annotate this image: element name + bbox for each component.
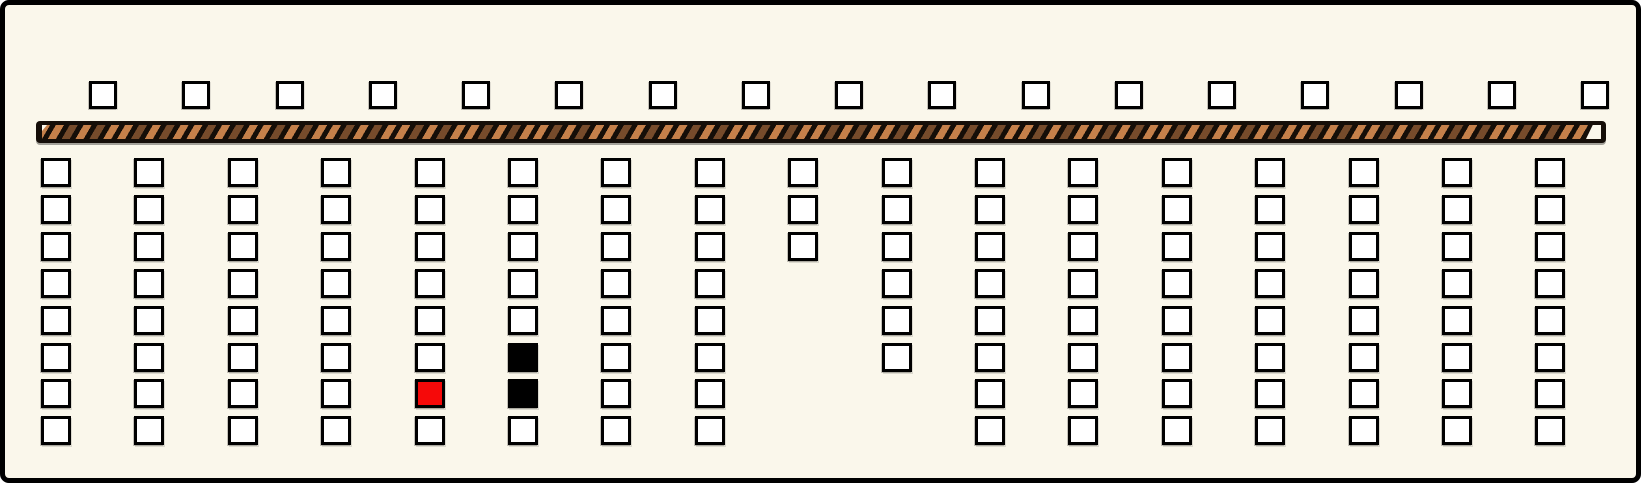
grid-cell-c2-r7 bbox=[134, 379, 164, 408]
grid-cell-c6-r7-black bbox=[508, 379, 538, 408]
grid-cell-c3-r6 bbox=[228, 343, 258, 372]
grid-cell-c15-r5 bbox=[1349, 306, 1379, 335]
grid-cell-c16-r1 bbox=[1442, 158, 1472, 187]
grid-cell-c7-r1 bbox=[601, 158, 631, 187]
top-slot-1 bbox=[89, 81, 117, 109]
top-slot-13 bbox=[1208, 81, 1236, 109]
grid-cell-c6-r6-black bbox=[508, 343, 538, 372]
grid-cell-c15-r3 bbox=[1349, 232, 1379, 261]
grid-cell-c8-r1 bbox=[695, 158, 725, 187]
grid-cell-c11-r1 bbox=[975, 158, 1005, 187]
grid-cell-c17-r4 bbox=[1535, 269, 1565, 298]
grid-cell-c4-r1 bbox=[321, 158, 351, 187]
grid-cell-c6-r8 bbox=[508, 416, 538, 445]
grid-cell-c17-r1 bbox=[1535, 158, 1565, 187]
grid-cell-c10-r2 bbox=[882, 195, 912, 224]
grid-cell-c4-r4 bbox=[321, 269, 351, 298]
grid-cell-c3-r7 bbox=[228, 379, 258, 408]
grid-cell-c12-r5 bbox=[1068, 306, 1098, 335]
hatched-bar bbox=[36, 121, 1606, 143]
grid-cell-c17-r8 bbox=[1535, 416, 1565, 445]
grid-cell-c7-r2 bbox=[601, 195, 631, 224]
grid-cell-c12-r6 bbox=[1068, 343, 1098, 372]
grid-cell-c10-r4 bbox=[882, 269, 912, 298]
grid-cell-c6-r2 bbox=[508, 195, 538, 224]
grid-cell-c5-r8 bbox=[415, 416, 445, 445]
grid-cell-c8-r2 bbox=[695, 195, 725, 224]
grid-cell-c9-r1 bbox=[788, 158, 818, 187]
top-slot-15 bbox=[1395, 81, 1423, 109]
grid-cell-c11-r2 bbox=[975, 195, 1005, 224]
grid-cell-c8-r4 bbox=[695, 269, 725, 298]
grid-cell-c11-r7 bbox=[975, 379, 1005, 408]
grid-cell-c11-r3 bbox=[975, 232, 1005, 261]
grid-cell-c17-r6 bbox=[1535, 343, 1565, 372]
grid-cell-c13-r2 bbox=[1162, 195, 1192, 224]
grid-cell-c9-r3 bbox=[788, 232, 818, 261]
grid-cell-c13-r8 bbox=[1162, 416, 1192, 445]
grid-cell-c14-r5 bbox=[1255, 306, 1285, 335]
grid-cell-c12-r4 bbox=[1068, 269, 1098, 298]
grid-cell-c14-r7 bbox=[1255, 379, 1285, 408]
grid-cell-c3-r2 bbox=[228, 195, 258, 224]
grid-cell-c3-r3 bbox=[228, 232, 258, 261]
grid-cell-c2-r3 bbox=[134, 232, 164, 261]
grid-cell-c3-r5 bbox=[228, 306, 258, 335]
grid-cell-c8-r6 bbox=[695, 343, 725, 372]
grid-cell-c17-r7 bbox=[1535, 379, 1565, 408]
grid-cell-c1-r7 bbox=[41, 379, 71, 408]
grid-cell-c12-r1 bbox=[1068, 158, 1098, 187]
grid-cell-c6-r4 bbox=[508, 269, 538, 298]
grid-cell-c16-r7 bbox=[1442, 379, 1472, 408]
grid-cell-c10-r5 bbox=[882, 306, 912, 335]
grid-cell-c5-r4 bbox=[415, 269, 445, 298]
grid-cell-c8-r8 bbox=[695, 416, 725, 445]
grid-cell-c8-r5 bbox=[695, 306, 725, 335]
grid-cell-c13-r7 bbox=[1162, 379, 1192, 408]
grid-cell-c2-r4 bbox=[134, 269, 164, 298]
grid-cell-c1-r4 bbox=[41, 269, 71, 298]
grid-cell-c17-r3 bbox=[1535, 232, 1565, 261]
grid-cell-c2-r5 bbox=[134, 306, 164, 335]
grid-cell-c17-r5 bbox=[1535, 306, 1565, 335]
grid-cell-c11-r6 bbox=[975, 343, 1005, 372]
grid-cell-c1-r1 bbox=[41, 158, 71, 187]
grid-cell-c4-r8 bbox=[321, 416, 351, 445]
grid-cell-c8-r3 bbox=[695, 232, 725, 261]
grid-cell-c5-r6 bbox=[415, 343, 445, 372]
top-slot-5 bbox=[462, 81, 490, 109]
grid-cell-c12-r7 bbox=[1068, 379, 1098, 408]
grid-cell-c1-r3 bbox=[41, 232, 71, 261]
grid-cell-c16-r2 bbox=[1442, 195, 1472, 224]
top-slot-12 bbox=[1115, 81, 1143, 109]
grid-cell-c3-r8 bbox=[228, 416, 258, 445]
grid-cell-c14-r2 bbox=[1255, 195, 1285, 224]
grid-cell-c7-r6 bbox=[601, 343, 631, 372]
hatched-bar-stripes bbox=[42, 125, 1601, 139]
grid-cell-c9-r2 bbox=[788, 195, 818, 224]
grid-cell-c2-r6 bbox=[134, 343, 164, 372]
grid-cell-c16-r8 bbox=[1442, 416, 1472, 445]
grid-cell-c10-r6 bbox=[882, 343, 912, 372]
grid-cell-c13-r6 bbox=[1162, 343, 1192, 372]
top-slot-2 bbox=[182, 81, 210, 109]
top-slot-6 bbox=[555, 81, 583, 109]
grid-cell-c1-r2 bbox=[41, 195, 71, 224]
grid-cell-c2-r8 bbox=[134, 416, 164, 445]
grid-cell-c13-r3 bbox=[1162, 232, 1192, 261]
grid-cell-c15-r2 bbox=[1349, 195, 1379, 224]
grid-cell-c10-r1 bbox=[882, 158, 912, 187]
top-slot-7 bbox=[649, 81, 677, 109]
grid-cell-c6-r3 bbox=[508, 232, 538, 261]
grid-cell-c16-r4 bbox=[1442, 269, 1472, 298]
top-slot-3 bbox=[276, 81, 304, 109]
grid-cell-c5-r1 bbox=[415, 158, 445, 187]
grid-cell-c12-r2 bbox=[1068, 195, 1098, 224]
grid-cell-c8-r7 bbox=[695, 379, 725, 408]
grid-cell-c7-r4 bbox=[601, 269, 631, 298]
grid-cell-c5-r5 bbox=[415, 306, 445, 335]
top-slot-14 bbox=[1301, 81, 1329, 109]
grid-cell-c13-r1 bbox=[1162, 158, 1192, 187]
grid-cell-c15-r8 bbox=[1349, 416, 1379, 445]
grid-cell-c14-r4 bbox=[1255, 269, 1285, 298]
board bbox=[0, 0, 1641, 483]
grid-cell-c2-r1 bbox=[134, 158, 164, 187]
grid-cell-c6-r5 bbox=[508, 306, 538, 335]
grid-cell-c1-r5 bbox=[41, 306, 71, 335]
top-slot-8 bbox=[742, 81, 770, 109]
grid-cell-c4-r6 bbox=[321, 343, 351, 372]
grid-cell-c4-r7 bbox=[321, 379, 351, 408]
grid-cell-c7-r7 bbox=[601, 379, 631, 408]
grid-cell-c15-r4 bbox=[1349, 269, 1379, 298]
grid-cell-c13-r4 bbox=[1162, 269, 1192, 298]
grid-cell-c13-r5 bbox=[1162, 306, 1192, 335]
top-slot-9 bbox=[835, 81, 863, 109]
top-slot-10 bbox=[928, 81, 956, 109]
top-slot-11 bbox=[1022, 81, 1050, 109]
grid-cell-c7-r3 bbox=[601, 232, 631, 261]
grid-cell-c5-r3 bbox=[415, 232, 445, 261]
grid-cell-c17-r2 bbox=[1535, 195, 1565, 224]
grid-cell-c12-r8 bbox=[1068, 416, 1098, 445]
grid-cell-c16-r3 bbox=[1442, 232, 1472, 261]
grid-cell-c11-r4 bbox=[975, 269, 1005, 298]
grid-cell-c3-r1 bbox=[228, 158, 258, 187]
grid-cell-c15-r6 bbox=[1349, 343, 1379, 372]
grid-cell-c15-r7 bbox=[1349, 379, 1379, 408]
grid-cell-c7-r8 bbox=[601, 416, 631, 445]
grid-cell-c10-r3 bbox=[882, 232, 912, 261]
grid-cell-c12-r3 bbox=[1068, 232, 1098, 261]
top-slot-17 bbox=[1581, 81, 1609, 109]
grid-cell-c4-r2 bbox=[321, 195, 351, 224]
top-slot-4 bbox=[369, 81, 397, 109]
grid-cell-c7-r5 bbox=[601, 306, 631, 335]
grid-cell-c6-r1 bbox=[508, 158, 538, 187]
grid-cell-c15-r1 bbox=[1349, 158, 1379, 187]
grid-cell-c5-r7-red bbox=[415, 379, 445, 408]
grid-cell-c2-r2 bbox=[134, 195, 164, 224]
grid-cell-c1-r8 bbox=[41, 416, 71, 445]
grid-cell-c5-r2 bbox=[415, 195, 445, 224]
grid-cell-c16-r5 bbox=[1442, 306, 1472, 335]
grid-cell-c1-r6 bbox=[41, 343, 71, 372]
grid-cell-c11-r8 bbox=[975, 416, 1005, 445]
grid-cell-c4-r5 bbox=[321, 306, 351, 335]
grid-cell-c4-r3 bbox=[321, 232, 351, 261]
grid-cell-c14-r8 bbox=[1255, 416, 1285, 445]
grid-cell-c14-r6 bbox=[1255, 343, 1285, 372]
grid-cell-c14-r3 bbox=[1255, 232, 1285, 261]
top-slot-16 bbox=[1488, 81, 1516, 109]
grid-cell-c14-r1 bbox=[1255, 158, 1285, 187]
grid-cell-c3-r4 bbox=[228, 269, 258, 298]
grid-cell-c11-r5 bbox=[975, 306, 1005, 335]
grid-cell-c16-r6 bbox=[1442, 343, 1472, 372]
